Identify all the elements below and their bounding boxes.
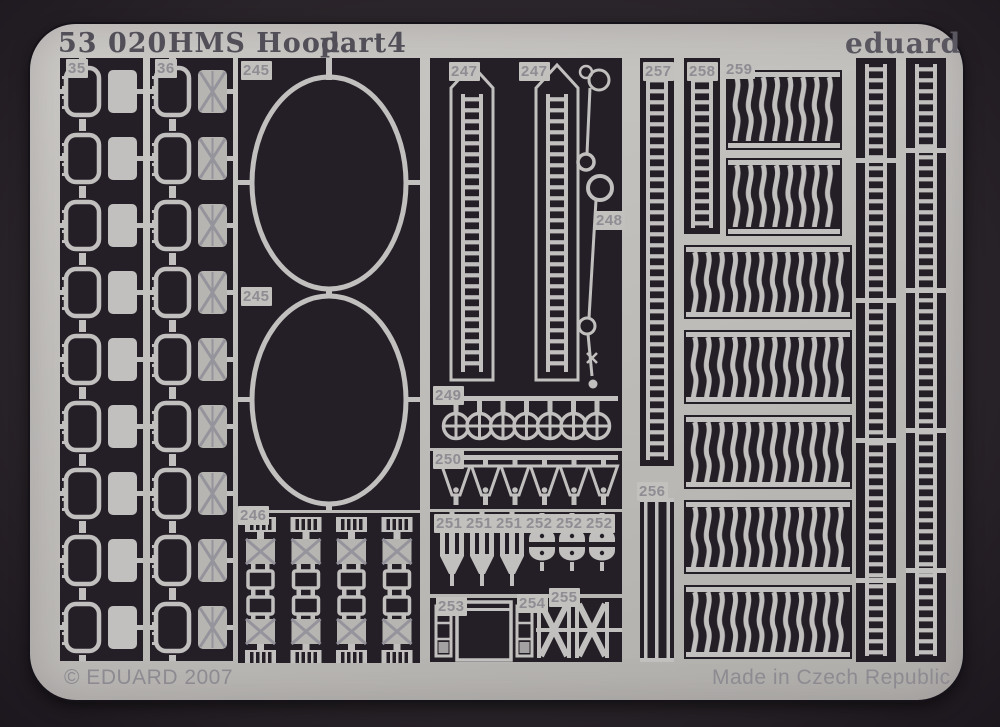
made-in-text: Made in Czech Republic [712, 666, 951, 690]
part-label-252: 252 [524, 514, 555, 533]
wave-strips-block-4 [684, 500, 852, 574]
wave-strips-block-1 [684, 245, 852, 319]
railing-strip-256 [640, 498, 674, 662]
door-column-35 [60, 58, 143, 661]
long-ladder-right-inner [906, 58, 946, 662]
part-label-254: 254 [517, 594, 548, 613]
kit-name: HMS Hood [168, 28, 341, 59]
part-label-251: 251 [434, 514, 465, 533]
part-label-246: 246 [238, 506, 269, 525]
part-name: part4 [320, 28, 407, 59]
part-label-250: 250 [433, 450, 464, 469]
brand-logo: eduard [845, 27, 961, 60]
part-label-257: 257 [643, 62, 674, 81]
part-label-248: 248 [594, 211, 625, 230]
fittings-246 [238, 513, 420, 663]
fret-graphics [0, 0, 1000, 727]
panel-254 [517, 606, 532, 656]
part-label-252: 252 [554, 514, 585, 533]
part-label-249: 249 [433, 386, 464, 405]
wave-strips-block-2 [684, 330, 852, 404]
part-label-252: 252 [584, 514, 615, 533]
wave-strips-259-a [726, 70, 842, 150]
inclined-ladder-247-right [536, 65, 578, 380]
part-label-259: 259 [724, 60, 755, 79]
oval-rings-245 [238, 58, 420, 510]
part-label-36: 36 [155, 59, 177, 78]
part-label-256: 256 [637, 482, 668, 501]
part-label-245: 245 [241, 287, 272, 306]
wave-strips-block-3 [684, 415, 852, 489]
ladder-258 [684, 58, 720, 234]
part-label-245: 245 [241, 61, 272, 80]
copyright-text: © EDUARD 2007 [64, 666, 233, 690]
part-label-35: 35 [66, 59, 88, 78]
part-label-247: 247 [519, 62, 550, 81]
part-label-258: 258 [687, 62, 718, 81]
catalog-number: 53 020 [58, 28, 167, 59]
inclined-ladder-247-left [451, 65, 493, 380]
wave-strips-259-b [726, 158, 842, 236]
part-label-247: 247 [449, 62, 480, 81]
part-label-253: 253 [436, 597, 467, 616]
photo-stage: 53 020 HMS Hood part4 eduard 35 36 245 2… [0, 0, 1000, 727]
part-label-251: 251 [464, 514, 495, 533]
long-ladder-right-outer [856, 58, 896, 662]
part-label-251: 251 [494, 514, 525, 533]
wave-strips-block-5 [684, 585, 852, 659]
part-label-255: 255 [549, 588, 580, 607]
ladder-257 [640, 58, 674, 466]
door-column-36 [150, 58, 233, 661]
